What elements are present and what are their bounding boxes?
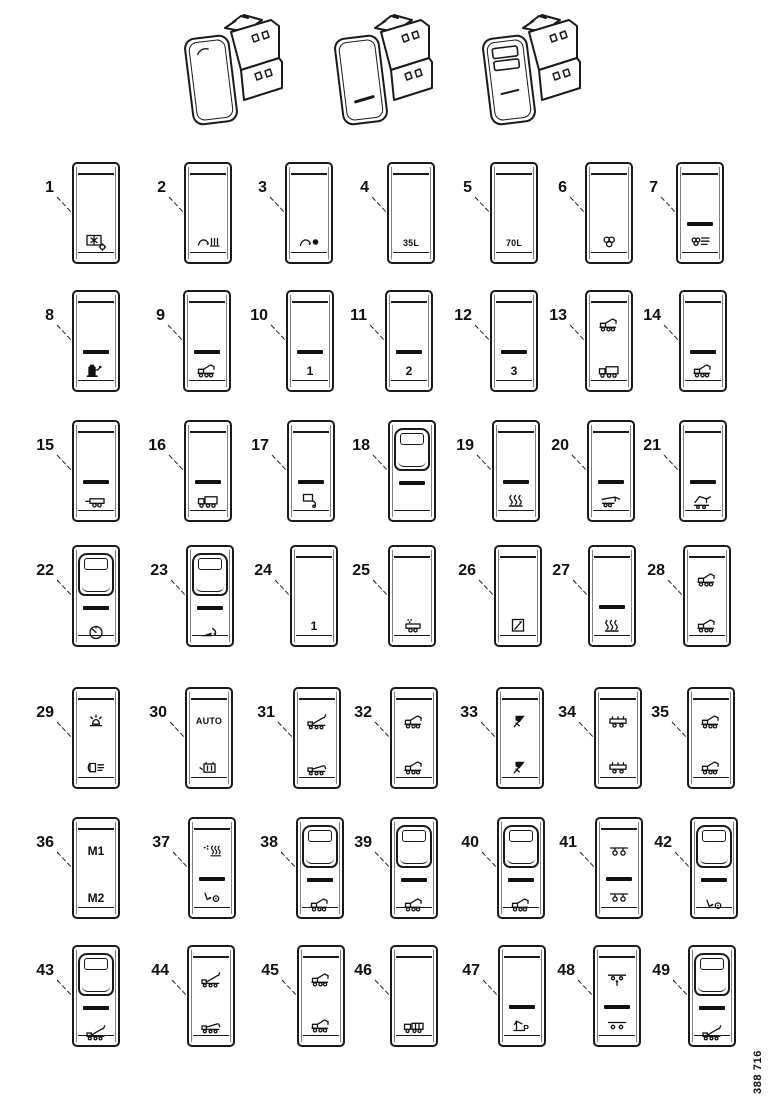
position-dash-mark [599,605,625,609]
position-dash-mark [701,878,727,882]
switch-bezel-bottom-line [78,907,114,909]
switch-bezel-bottom-line [601,907,637,909]
switch-label: 1 [292,619,336,633]
tipper-raise-icon [304,712,331,730]
callout-number-24: 24 [236,562,272,580]
switch-bezel-top-line [291,173,327,175]
crane-truck-icon [698,758,725,776]
switch-bezel-top-line [396,698,432,700]
switch-bezel-bottom-line [685,380,721,382]
switch-bezel-top-line [394,556,430,558]
callout-number-46: 46 [336,962,372,980]
switch-bezel-bottom-line [190,252,226,254]
switch-bezel-bottom-line [78,777,114,779]
switch-bezel-bottom-line [500,635,536,637]
switch-label: M1 [74,844,118,858]
tipping-hook-icon [197,623,224,641]
tipper-raise-icon [198,970,225,988]
switch-bezel-bottom-line [496,252,532,254]
switch-bezel-top-line [689,556,725,558]
switch-44 [187,945,235,1047]
switch-bezel-bottom-line [593,510,629,512]
spreader-nozzle-icon [507,758,534,776]
switch-46 [390,945,438,1047]
switch-bezel-bottom-line [689,635,725,637]
switch-bezel-bottom-line [394,510,430,512]
beacon-icon [83,712,110,730]
callout-number-34: 34 [540,704,576,722]
switch-bezel-bottom-line [394,635,430,637]
position-dash-mark [297,350,323,354]
callout-number-30: 30 [131,704,167,722]
callout-number-12: 12 [436,307,472,325]
switch-11: 2 [385,290,433,392]
switch-bezel-top-line [593,431,629,433]
axle-lift-icon [604,970,631,988]
tipper-raise-icon [699,1023,726,1041]
switch-41 [595,817,643,919]
platform-trailer-icon [605,758,632,776]
switch-bezel-bottom-line [685,510,721,512]
callout-number-45: 45 [243,962,279,980]
position-dash-mark [396,350,422,354]
callout-number-42: 42 [636,834,672,852]
switch-18 [388,420,436,522]
callout-number-31: 31 [239,704,275,722]
callout-number-26: 26 [440,562,476,580]
switch-bezel-bottom-line [396,1035,432,1037]
callout-number-5: 5 [436,179,472,197]
switch-bezel-bottom-line [496,380,532,382]
switch-bezel-top-line [191,698,227,700]
callout-number-18: 18 [334,437,370,455]
switch-bezel-bottom-line [393,252,429,254]
switch-bezel-top-line [685,431,721,433]
switch-6 [585,162,633,264]
position-dash-mark [690,350,716,354]
switch-bezel-bottom-line [498,510,534,512]
paddle-grip-slot [702,830,726,842]
hook-sweep-icon [195,233,222,251]
switch-22 [72,545,120,647]
switch-bezel-bottom-line [78,380,114,382]
tipper-lower-icon [198,1016,225,1034]
rocker-switch-module-dash [331,5,443,143]
switch-bezel-bottom-line [391,380,427,382]
switch-45 [297,945,345,1047]
switch-bezel-top-line [496,173,532,175]
bogie-axle-icon [606,888,633,906]
callout-number-33: 33 [442,704,478,722]
paddle-grip-slot [402,830,426,842]
switch-bezel-top-line [396,956,432,958]
switch-33 [496,687,544,789]
switch-bezel-bottom-line [591,380,627,382]
switch-bezel-bottom-line [293,510,329,512]
trailer-load-icon [399,616,426,634]
position-dash-mark [83,480,109,484]
release-hook-icon [199,888,226,906]
position-dash-mark [197,606,223,610]
work-light-icon [83,758,110,776]
switch-bezel-top-line [601,828,637,830]
crane-truck-icon [690,361,717,379]
callout-number-40: 40 [443,834,479,852]
switch-label: 2 [387,364,431,378]
switch-bezel-top-line [500,556,536,558]
paddle-grip-slot [509,830,533,842]
switch-bezel-top-line [78,698,114,700]
truck-icon [596,361,623,379]
switch-49 [688,945,736,1047]
release-hook-icon [701,895,728,913]
position-dash-mark [401,878,427,882]
switch-40 [497,817,545,919]
callout-number-23: 23 [132,562,168,580]
tipper-lower-icon [304,758,331,776]
callout-number-3: 3 [231,179,267,197]
switch-bezel-bottom-line [303,1035,339,1037]
switch-bezel-bottom-line [193,1035,229,1037]
callout-number-13: 13 [531,307,567,325]
switch-bezel-bottom-line [693,777,729,779]
switch-bezel-top-line [591,301,627,303]
bogie-axle-icon [606,842,633,860]
crane-truck-icon [401,895,428,913]
callout-number-25: 25 [334,562,370,580]
switch-bezel-top-line [78,173,114,175]
hook-grab-icon [296,233,323,251]
paddle-grip-slot [84,558,108,570]
position-dash-mark [606,877,632,881]
position-dash-mark [83,350,109,354]
callout-number-36: 36 [18,834,54,852]
paddle-grip-slot [700,958,724,970]
switch-2 [184,162,232,264]
rocker-paddle [396,825,432,868]
callout-number-11: 11 [331,307,367,325]
switch-bezel-bottom-line [502,777,538,779]
switch-34 [594,687,642,789]
switch-label: 70L [492,236,536,250]
rocker-paddle [192,553,228,596]
callout-number-19: 19 [438,437,474,455]
switch-bezel-top-line [591,173,627,175]
switch-32 [390,687,438,789]
callout-number-37: 37 [134,834,170,852]
battery-box-icon [196,758,223,776]
position-dash-mark [298,480,324,484]
rocker-paddle [503,825,539,868]
spreader-nozzle-icon [507,712,534,730]
switch-48 [593,945,641,1047]
switch-bezel-top-line [693,698,729,700]
switch-12: 3 [490,290,538,392]
switch-24: 1 [290,545,338,647]
switch-bezel-top-line [190,431,226,433]
position-dash-mark [399,481,425,485]
position-dash-mark [598,480,624,484]
switch-bezel-top-line [496,301,532,303]
switch-bezel-bottom-line [504,1035,540,1037]
switch-21 [679,420,727,522]
crane-park-icon [509,1016,536,1034]
callout-number-15: 15 [18,437,54,455]
paddle-grip-slot [84,958,108,970]
crane-truck-icon [308,1016,335,1034]
switch-bezel-top-line [190,173,226,175]
rocker-paddle [302,825,338,868]
page: 12335L470L567891102113121314151617181920… [0,0,778,1100]
switch-bezel-top-line [502,698,538,700]
switch-14 [679,290,727,392]
crane-truck-icon [308,970,335,988]
rocker-paddle [78,553,114,596]
switch-9 [183,290,231,392]
switch-bezel-top-line [682,173,718,175]
switch-bezel-bottom-line [292,380,328,382]
position-dash-mark [503,480,529,484]
callout-number-7: 7 [622,179,658,197]
rocker-paddle [694,953,730,996]
switch-bezel-top-line [599,956,635,958]
switch-bezel-top-line [78,828,114,830]
switch-16 [184,420,232,522]
switch-bezel-bottom-line [190,510,226,512]
switch-bezel-top-line [498,431,534,433]
switch-bezel-top-line [292,301,328,303]
crane-truck-icon [401,712,428,730]
switch-bezel-top-line [194,828,230,830]
switch-39 [390,817,438,919]
callout-number-4: 4 [333,179,369,197]
rocker-paddle [696,825,732,868]
callout-number-43: 43 [18,962,54,980]
position-dash-mark [307,878,333,882]
callout-number-49: 49 [634,962,670,980]
position-dash-mark [508,878,534,882]
callout-number-32: 32 [336,704,372,722]
heated-icon [503,491,530,509]
truck-trailer-icon [401,1016,428,1034]
switch-19 [492,420,540,522]
switch-35 [687,687,735,789]
switch-10: 1 [286,290,334,392]
switch-43 [72,945,120,1047]
switch-bezel-top-line [299,698,335,700]
callout-number-35: 35 [633,704,669,722]
callout-number-44: 44 [133,962,169,980]
callout-number-48: 48 [539,962,575,980]
switch-bezel-top-line [296,556,332,558]
rocker-switch-module-plain [181,5,293,143]
callout-number-21: 21 [625,437,661,455]
switch-20 [587,420,635,522]
switch-bezel-bottom-line [591,252,627,254]
fan-icon [596,233,623,251]
switch-28 [683,545,731,647]
switch-bezel-top-line [685,301,721,303]
crane-truck-icon [401,758,428,776]
switch-label: 3 [492,364,536,378]
callout-number-39: 39 [336,834,372,852]
switch-bezel-bottom-line [600,777,636,779]
switch-26 [494,545,542,647]
switch-23 [186,545,234,647]
position-dash-mark [83,1006,109,1010]
rocker-paddle [78,953,114,996]
switch-bezel-top-line [303,956,339,958]
platform-trailer-icon [605,712,632,730]
switch-1 [72,162,120,264]
refrigeration-unit-icon [83,233,110,251]
switch-bezel-top-line [393,173,429,175]
crane-truck-icon [694,570,721,588]
callout-number-38: 38 [242,834,278,852]
switch-25 [388,545,436,647]
trailer-icon [83,491,110,509]
switch-3 [285,162,333,264]
switch-bezel-top-line [78,431,114,433]
fuel-pump-icon [83,361,110,379]
switch-label: AUTO [187,714,231,728]
crane-truck-icon [194,361,221,379]
position-dash-mark [604,1005,630,1009]
crane-extend-icon [598,491,625,509]
switch-29 [72,687,120,789]
tipper-raise-icon [83,1023,110,1041]
switch-42 [690,817,738,919]
switch-38 [296,817,344,919]
position-dash-mark [199,877,225,881]
callout-number-22: 22 [18,562,54,580]
callout-number-1: 1 [18,179,54,197]
switch-label: 1 [288,364,332,378]
switch-label: M2 [74,891,118,905]
switch-bezel-bottom-line [291,252,327,254]
switch-bezel-top-line [293,431,329,433]
position-dash-mark [83,606,109,610]
switch-bezel-top-line [391,301,427,303]
callout-number-17: 17 [233,437,269,455]
position-dash-mark [699,1006,725,1010]
callout-number-29: 29 [18,704,54,722]
switch-label: 35L [389,236,433,250]
callout-number-9: 9 [129,307,165,325]
callout-number-16: 16 [130,437,166,455]
position-dash-mark [687,222,713,226]
switch-47 [498,945,546,1047]
coupling-icon [298,491,325,509]
gauge-icon [83,623,110,641]
switch-7 [676,162,724,264]
position-dash-mark [195,480,221,484]
position-dash-mark [690,480,716,484]
figure-number: 388 716 [752,1050,764,1094]
switch-bezel-bottom-line [78,510,114,512]
heater-fan-icon [687,233,714,251]
crane-truck-icon [596,315,623,333]
switch-30: AUTO [185,687,233,789]
switch-bezel-top-line [78,301,114,303]
callout-number-47: 47 [444,962,480,980]
switch-bezel-bottom-line [299,777,335,779]
switch-bezel-bottom-line [296,635,332,637]
axle-lowered-icon [604,1016,631,1034]
callout-number-10: 10 [232,307,268,325]
heated-icon [599,616,626,634]
crane-truck-icon [698,712,725,730]
callout-number-41: 41 [541,834,577,852]
callout-number-20: 20 [533,437,569,455]
callout-number-14: 14 [625,307,661,325]
paddle-grip-slot [400,433,424,445]
position-dash-mark [194,350,220,354]
switch-bezel-bottom-line [594,635,630,637]
switch-bezel-bottom-line [78,252,114,254]
switch-bezel-top-line [600,698,636,700]
rocker-paddle [394,428,430,471]
crane-fold-icon [690,491,717,509]
callout-number-2: 2 [130,179,166,197]
position-dash-mark [501,350,527,354]
switch-bezel-top-line [189,301,225,303]
switch-bezel-top-line [594,556,630,558]
crane-truck-icon [508,895,535,913]
switch-31 [293,687,341,789]
switch-13 [585,290,633,392]
callout-number-28: 28 [629,562,665,580]
callout-number-8: 8 [18,307,54,325]
switch-15 [72,420,120,522]
crane-truck-icon [694,616,721,634]
switch-36: M1M2 [72,817,120,919]
parking-heater-icon [199,842,226,860]
rocker-switch-module-window [479,5,591,143]
switch-bezel-bottom-line [396,777,432,779]
callout-number-6: 6 [531,179,567,197]
paddle-grip-slot [198,558,222,570]
cigarette-lighter-icon [505,616,532,634]
switch-bezel-top-line [504,956,540,958]
switch-17 [287,420,335,522]
paddle-grip-slot [308,830,332,842]
switch-bezel-bottom-line [191,777,227,779]
switch-bezel-bottom-line [189,380,225,382]
crane-truck-icon [307,895,334,913]
switch-5: 70L [490,162,538,264]
switch-4: 35L [387,162,435,264]
position-dash-mark [509,1005,535,1009]
switch-27 [588,545,636,647]
switch-bezel-bottom-line [599,1035,635,1037]
truck-icon [195,491,222,509]
callout-number-27: 27 [534,562,570,580]
switch-bezel-bottom-line [682,252,718,254]
switch-bezel-top-line [193,956,229,958]
switch-bezel-bottom-line [194,907,230,909]
switch-37 [188,817,236,919]
switch-8 [72,290,120,392]
